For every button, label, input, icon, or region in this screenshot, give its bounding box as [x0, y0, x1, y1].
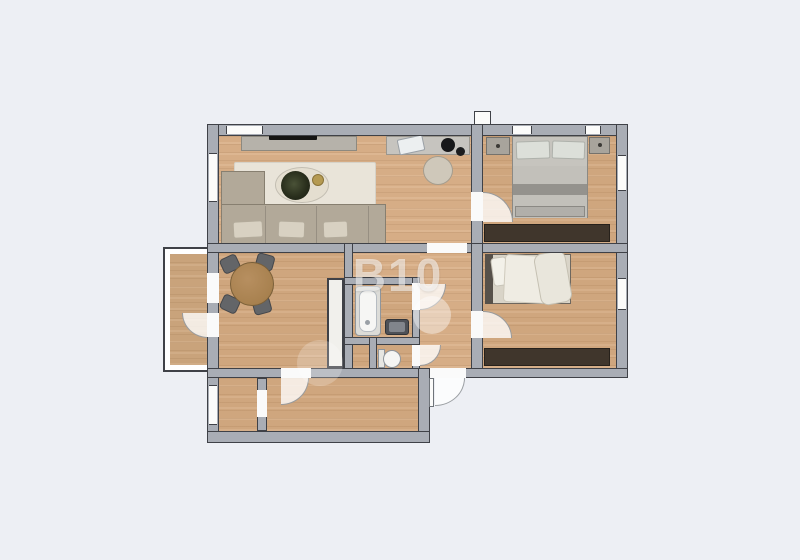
wall-living-bedroom1 — [471, 124, 483, 253]
bowl-gold — [312, 174, 324, 186]
nightstand-left-knob — [496, 144, 500, 148]
sink-basin — [389, 322, 405, 332]
entrance-door-leaf — [429, 378, 434, 407]
window-bedroom1-top-left — [512, 126, 532, 134]
door-arc-entrance — [435, 378, 465, 406]
watermark-text: B10 — [346, 252, 450, 304]
wardrobe-bedroom-1 — [484, 224, 610, 242]
nightstand-right-knob — [598, 143, 602, 147]
door-gap-bedroom1 — [471, 192, 483, 221]
door-gap-wc — [412, 345, 420, 366]
toilet-bowl — [383, 350, 401, 368]
bed-foot-bench — [515, 206, 585, 217]
door-gap-entrance — [430, 368, 466, 378]
sofa-cushion-3 — [323, 221, 349, 239]
coffee-machine — [441, 138, 455, 152]
door-gap-storage — [257, 390, 267, 417]
balcony-door-upper — [207, 273, 219, 303]
sofa-cushion-2 — [278, 221, 306, 239]
chimney-block — [474, 111, 491, 125]
bathtub-drain — [365, 320, 370, 325]
wall-bathroom-bottom — [344, 337, 420, 345]
wall-corridor-bottom — [207, 431, 430, 443]
window-living-top — [226, 126, 263, 134]
bed-duvet-band — [513, 184, 587, 195]
balcony-door-lower — [207, 313, 219, 337]
window-living-left — [209, 153, 217, 202]
sofa-seam-1 — [265, 206, 266, 244]
watermark-splash-2 — [297, 340, 343, 386]
bed-pillow-right — [552, 140, 586, 159]
sofa-cushion-1 — [233, 220, 264, 239]
sofa-seam-2 — [316, 206, 317, 244]
shaft-floor — [353, 345, 369, 368]
wall-top — [207, 124, 628, 136]
window-bedroom1-right — [618, 155, 626, 191]
sofa-seam-3 — [368, 206, 369, 244]
plant — [281, 171, 310, 200]
desk-chair — [423, 156, 453, 185]
door-gap-bedroom2 — [471, 311, 483, 338]
dining-table — [230, 262, 274, 306]
desk-lamp — [456, 147, 465, 156]
bed-pillow-left — [516, 140, 551, 159]
balcony-floor — [170, 254, 207, 365]
window-bedroom1-top-right — [585, 126, 601, 134]
window-bedroom2-right — [618, 278, 626, 310]
window-storage-left — [209, 385, 217, 425]
wardrobe-bedroom-2 — [484, 348, 610, 366]
